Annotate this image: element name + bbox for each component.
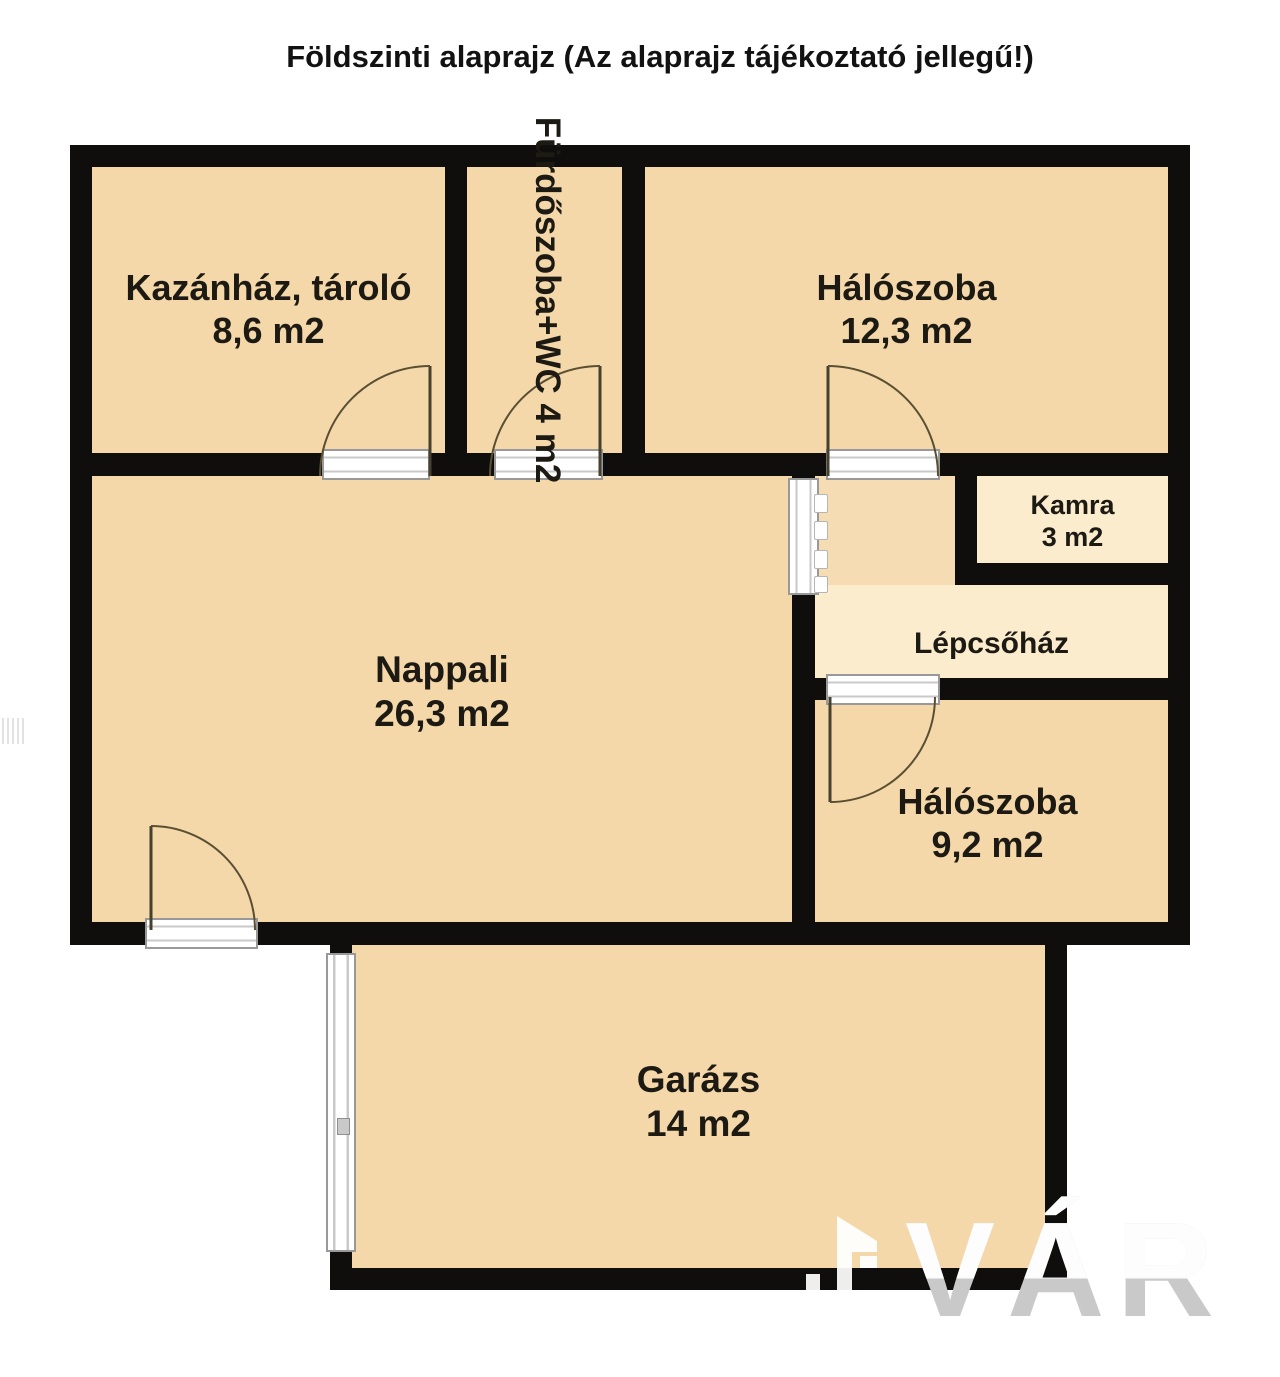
door-threshold-nappali — [145, 918, 258, 949]
plan-title-line2: (Az alaprajz tájékoztató jellegű!) — [564, 39, 1034, 74]
room-name: Garázs — [352, 1058, 1045, 1102]
label-kazanhaz: Kazánház, tároló 8,6 m2 — [92, 266, 445, 352]
label-haloszoba-kis: Hálószoba 9,2 m2 — [815, 780, 1160, 866]
plan-title-line1: Földszinti alaprajz — [286, 39, 555, 74]
opening-tab — [814, 521, 828, 540]
wall-kamra-bottom — [955, 563, 1190, 585]
label-lepcsohaz: Lépcsőház — [815, 626, 1168, 662]
room-area: 26,3 m2 — [92, 692, 792, 736]
opening-tab — [814, 494, 828, 513]
room-name: Lépcsőház — [815, 626, 1168, 662]
label-nappali: Nappali 26,3 m2 — [92, 648, 792, 737]
opening-tab — [814, 550, 828, 569]
floorplan: Földszinti alaprajz (Az alaprajz tájékoz… — [0, 0, 1280, 1377]
room-area: 3 m2 — [977, 521, 1168, 553]
door-threshold-haloszoba-kis — [826, 674, 940, 705]
wall-mid-horizontal — [70, 453, 1190, 476]
door-threshold-kazanhaz — [322, 449, 430, 480]
garage-door-handle — [337, 1118, 350, 1135]
room-area: 12,3 m2 — [645, 309, 1168, 352]
room-name: Nappali — [92, 648, 792, 692]
label-kamra: Kamra 3 m2 — [977, 489, 1168, 554]
room-area: 9,2 m2 — [815, 823, 1160, 866]
watermark-fragment — [2, 718, 24, 744]
room-area: 8,6 m2 — [92, 309, 445, 352]
room-area: 4 m2 — [528, 404, 567, 484]
room-name: Hálószoba — [645, 266, 1168, 309]
room-name: Kamra — [977, 489, 1168, 521]
wall-kazanhaz-furdoszoba — [445, 145, 467, 476]
wall-outer-left — [70, 145, 92, 945]
room-name: Kazánház, tároló — [92, 266, 445, 309]
wall-furdoszoba-haloszoba — [622, 145, 645, 476]
label-haloszoba-nagy: Hálószoba 12,3 m2 — [645, 266, 1168, 352]
room-area: 14 m2 — [352, 1102, 1045, 1146]
room-name: Hálószoba — [815, 780, 1160, 823]
door-threshold-haloszoba-nagy — [826, 449, 940, 480]
corridor — [815, 476, 955, 585]
label-furdoszoba: Fürdőszoba+WC 4 m2 — [525, 117, 569, 484]
room-name: Fürdőszoba+WC — [528, 117, 567, 394]
label-garazs: Garázs 14 m2 — [352, 1058, 1045, 1147]
wall-outer-right — [1168, 145, 1190, 945]
opening-tab — [814, 576, 828, 593]
plan-title: Földszinti alaprajz (Az alaprajz tájékoz… — [160, 36, 1160, 78]
